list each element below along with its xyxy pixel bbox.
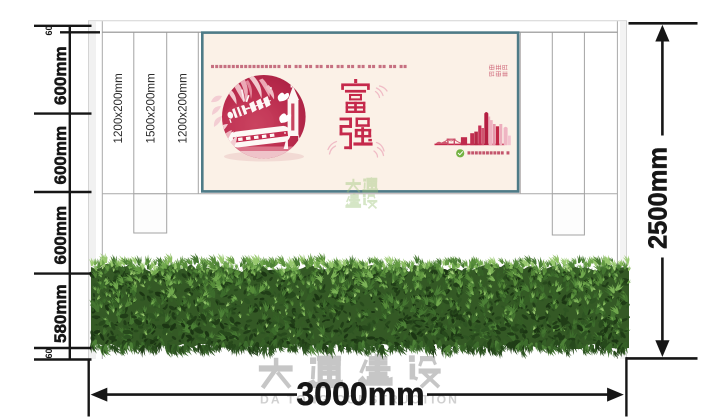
svg-text:60: 60 <box>44 348 54 358</box>
svg-text:2500mm: 2500mm <box>645 147 673 249</box>
svg-text:600mm: 600mm <box>51 46 70 105</box>
svg-text:600mm: 600mm <box>51 126 70 185</box>
svg-text:600mm: 600mm <box>51 206 70 265</box>
svg-text:1200x200mm: 1200x200mm <box>112 73 125 143</box>
svg-text:60: 60 <box>44 25 54 35</box>
svg-text:580mm: 580mm <box>51 284 70 343</box>
svg-text:1500x200mm: 1500x200mm <box>144 73 157 143</box>
svg-text:3000mm: 3000mm <box>297 376 425 412</box>
svg-text:1200x200mm: 1200x200mm <box>177 73 190 143</box>
